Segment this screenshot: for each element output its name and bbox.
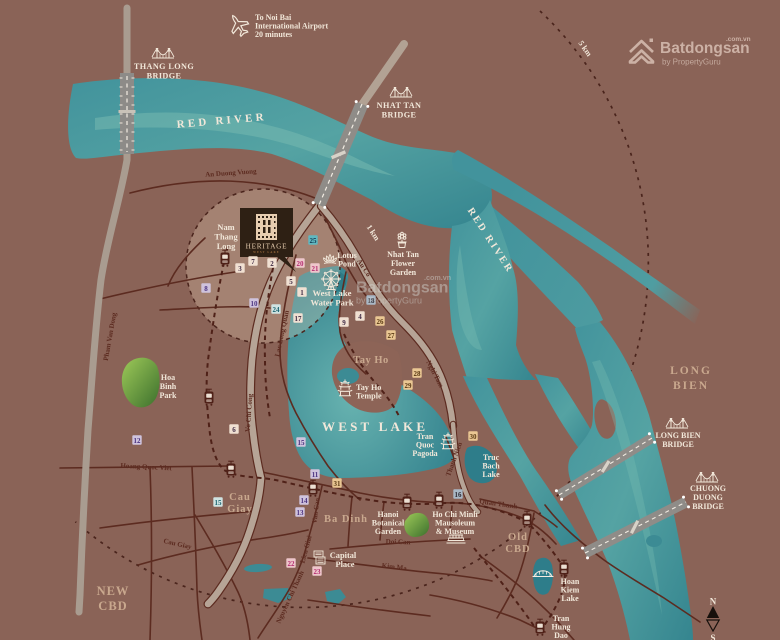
svg-text:1: 1: [300, 289, 304, 297]
svg-text:11: 11: [312, 471, 319, 479]
svg-text:LONG: LONG: [670, 365, 712, 377]
svg-text:12: 12: [134, 437, 142, 445]
svg-text:Pond: Pond: [338, 260, 356, 269]
svg-text:3: 3: [238, 265, 242, 273]
svg-text:28: 28: [414, 370, 422, 378]
svg-text:Nhat Tan: Nhat Tan: [387, 250, 419, 259]
svg-text:23: 23: [314, 568, 322, 576]
svg-text:29: 29: [405, 382, 413, 390]
svg-text:Giay: Giay: [227, 504, 253, 515]
svg-text:.com.vn: .com.vn: [726, 36, 751, 43]
svg-text:Old: Old: [508, 532, 528, 543]
svg-text:Ba Dinh: Ba Dinh: [324, 514, 368, 525]
svg-text:5: 5: [289, 278, 293, 286]
svg-text:17: 17: [295, 315, 303, 323]
svg-text:DUONG: DUONG: [693, 493, 723, 502]
svg-text:Place: Place: [335, 560, 354, 569]
svg-text:13: 13: [297, 509, 305, 517]
svg-text:Lake: Lake: [561, 594, 579, 603]
svg-text:& Museum: & Museum: [436, 527, 475, 536]
svg-text:Capital: Capital: [330, 551, 357, 560]
svg-text:16: 16: [455, 491, 463, 499]
svg-text:Cau: Cau: [229, 492, 251, 503]
svg-text:Garden: Garden: [375, 527, 402, 536]
svg-text:by PropertyGuru: by PropertyGuru: [662, 58, 721, 67]
svg-text:20: 20: [297, 260, 305, 268]
svg-text:Doi Can: Doi Can: [386, 538, 411, 547]
svg-text:20 minutes: 20 minutes: [255, 30, 292, 39]
svg-text:Lake: Lake: [482, 470, 500, 479]
svg-text:Nam: Nam: [217, 223, 234, 232]
svg-text:15: 15: [215, 499, 223, 507]
svg-text:14: 14: [301, 497, 309, 505]
svg-text:26: 26: [377, 318, 385, 326]
svg-text:15: 15: [298, 439, 306, 447]
svg-text:21: 21: [312, 265, 320, 273]
svg-text:THANG LONG: THANG LONG: [134, 62, 194, 71]
svg-text:BRIDGE: BRIDGE: [692, 502, 724, 511]
svg-text:24: 24: [273, 306, 281, 314]
svg-text:6: 6: [232, 426, 236, 434]
svg-text:27: 27: [388, 332, 396, 340]
svg-text:by PropertyGuru: by PropertyGuru: [356, 296, 422, 306]
svg-text:WEST LAKE: WEST LAKE: [322, 419, 428, 434]
svg-text:WEST LAKE: WEST LAKE: [253, 251, 280, 254]
svg-text:CBD: CBD: [505, 544, 530, 555]
svg-text:Garden: Garden: [390, 268, 417, 277]
svg-text:Thang: Thang: [214, 233, 238, 242]
svg-text:Water Park: Water Park: [310, 298, 353, 308]
svg-text:Tay Ho: Tay Ho: [353, 355, 389, 366]
svg-text:Park: Park: [160, 391, 177, 400]
svg-text:HERITAGE: HERITAGE: [246, 243, 288, 251]
svg-text:22: 22: [288, 560, 296, 568]
svg-text:9: 9: [342, 319, 346, 327]
svg-text:Temple: Temple: [356, 392, 382, 401]
svg-text:BRIDGE: BRIDGE: [147, 72, 182, 81]
svg-text:CHUONG: CHUONG: [690, 484, 726, 493]
svg-text:25: 25: [310, 237, 318, 245]
svg-text:BRIDGE: BRIDGE: [662, 440, 694, 449]
svg-text:10: 10: [251, 300, 259, 308]
svg-text:Dao: Dao: [554, 631, 568, 640]
svg-text:BRIDGE: BRIDGE: [382, 111, 417, 120]
svg-text:BIEN: BIEN: [673, 380, 709, 392]
svg-text:31: 31: [334, 480, 342, 488]
svg-text:LONG BIEN: LONG BIEN: [655, 431, 700, 440]
svg-text:Flower: Flower: [391, 259, 415, 268]
svg-text:7: 7: [251, 258, 255, 266]
svg-text:NHAT TAN: NHAT TAN: [377, 101, 422, 110]
svg-text:S: S: [710, 633, 715, 640]
svg-text:8: 8: [204, 285, 208, 293]
svg-text:CBD: CBD: [98, 599, 127, 613]
svg-text:N: N: [710, 597, 717, 607]
svg-text:Pagoda: Pagoda: [412, 449, 437, 458]
svg-text:Hoa: Hoa: [161, 373, 175, 382]
svg-text:Long: Long: [217, 242, 236, 251]
svg-text:Batdongsan: Batdongsan: [356, 280, 448, 297]
svg-text:4: 4: [358, 313, 362, 321]
svg-text:NEW: NEW: [97, 584, 130, 598]
svg-text:30: 30: [470, 433, 478, 441]
svg-text:2: 2: [270, 260, 274, 268]
svg-text:Binh: Binh: [160, 382, 177, 391]
svg-text:West Lake: West Lake: [313, 288, 352, 298]
